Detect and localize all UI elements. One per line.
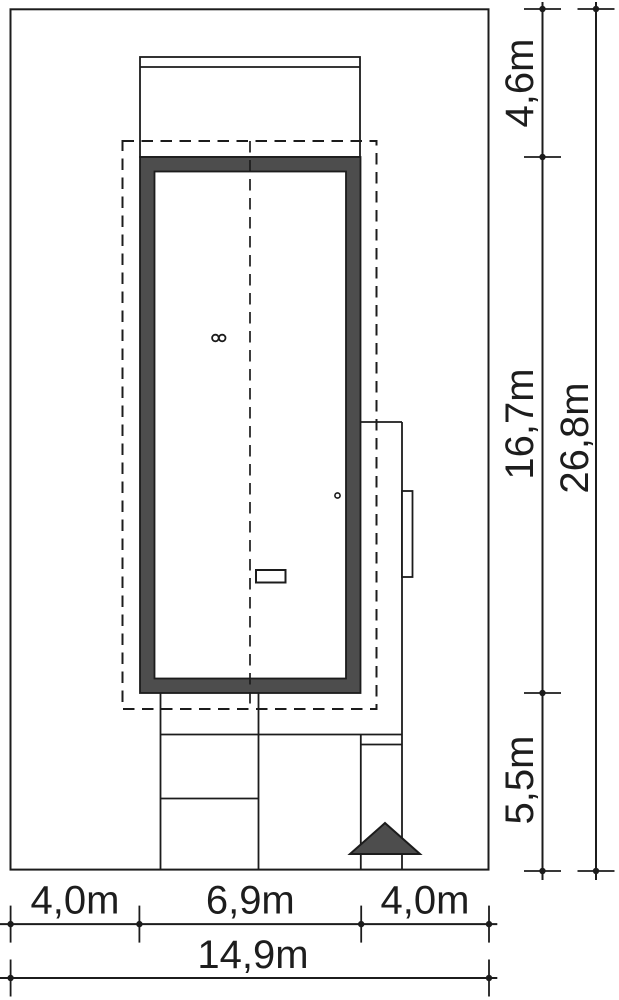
svg-text:5,5m: 5,5m — [498, 736, 542, 825]
svg-text:16,7m: 16,7m — [498, 368, 542, 479]
svg-text:26,8m: 26,8m — [553, 382, 597, 493]
svg-text:4,0m: 4,0m — [381, 879, 470, 923]
svg-text:4,6m: 4,6m — [498, 39, 542, 128]
svg-text:6,9m: 6,9m — [206, 879, 295, 923]
svg-text:14,9m: 14,9m — [197, 933, 308, 977]
svg-text:4,0m: 4,0m — [31, 879, 120, 923]
